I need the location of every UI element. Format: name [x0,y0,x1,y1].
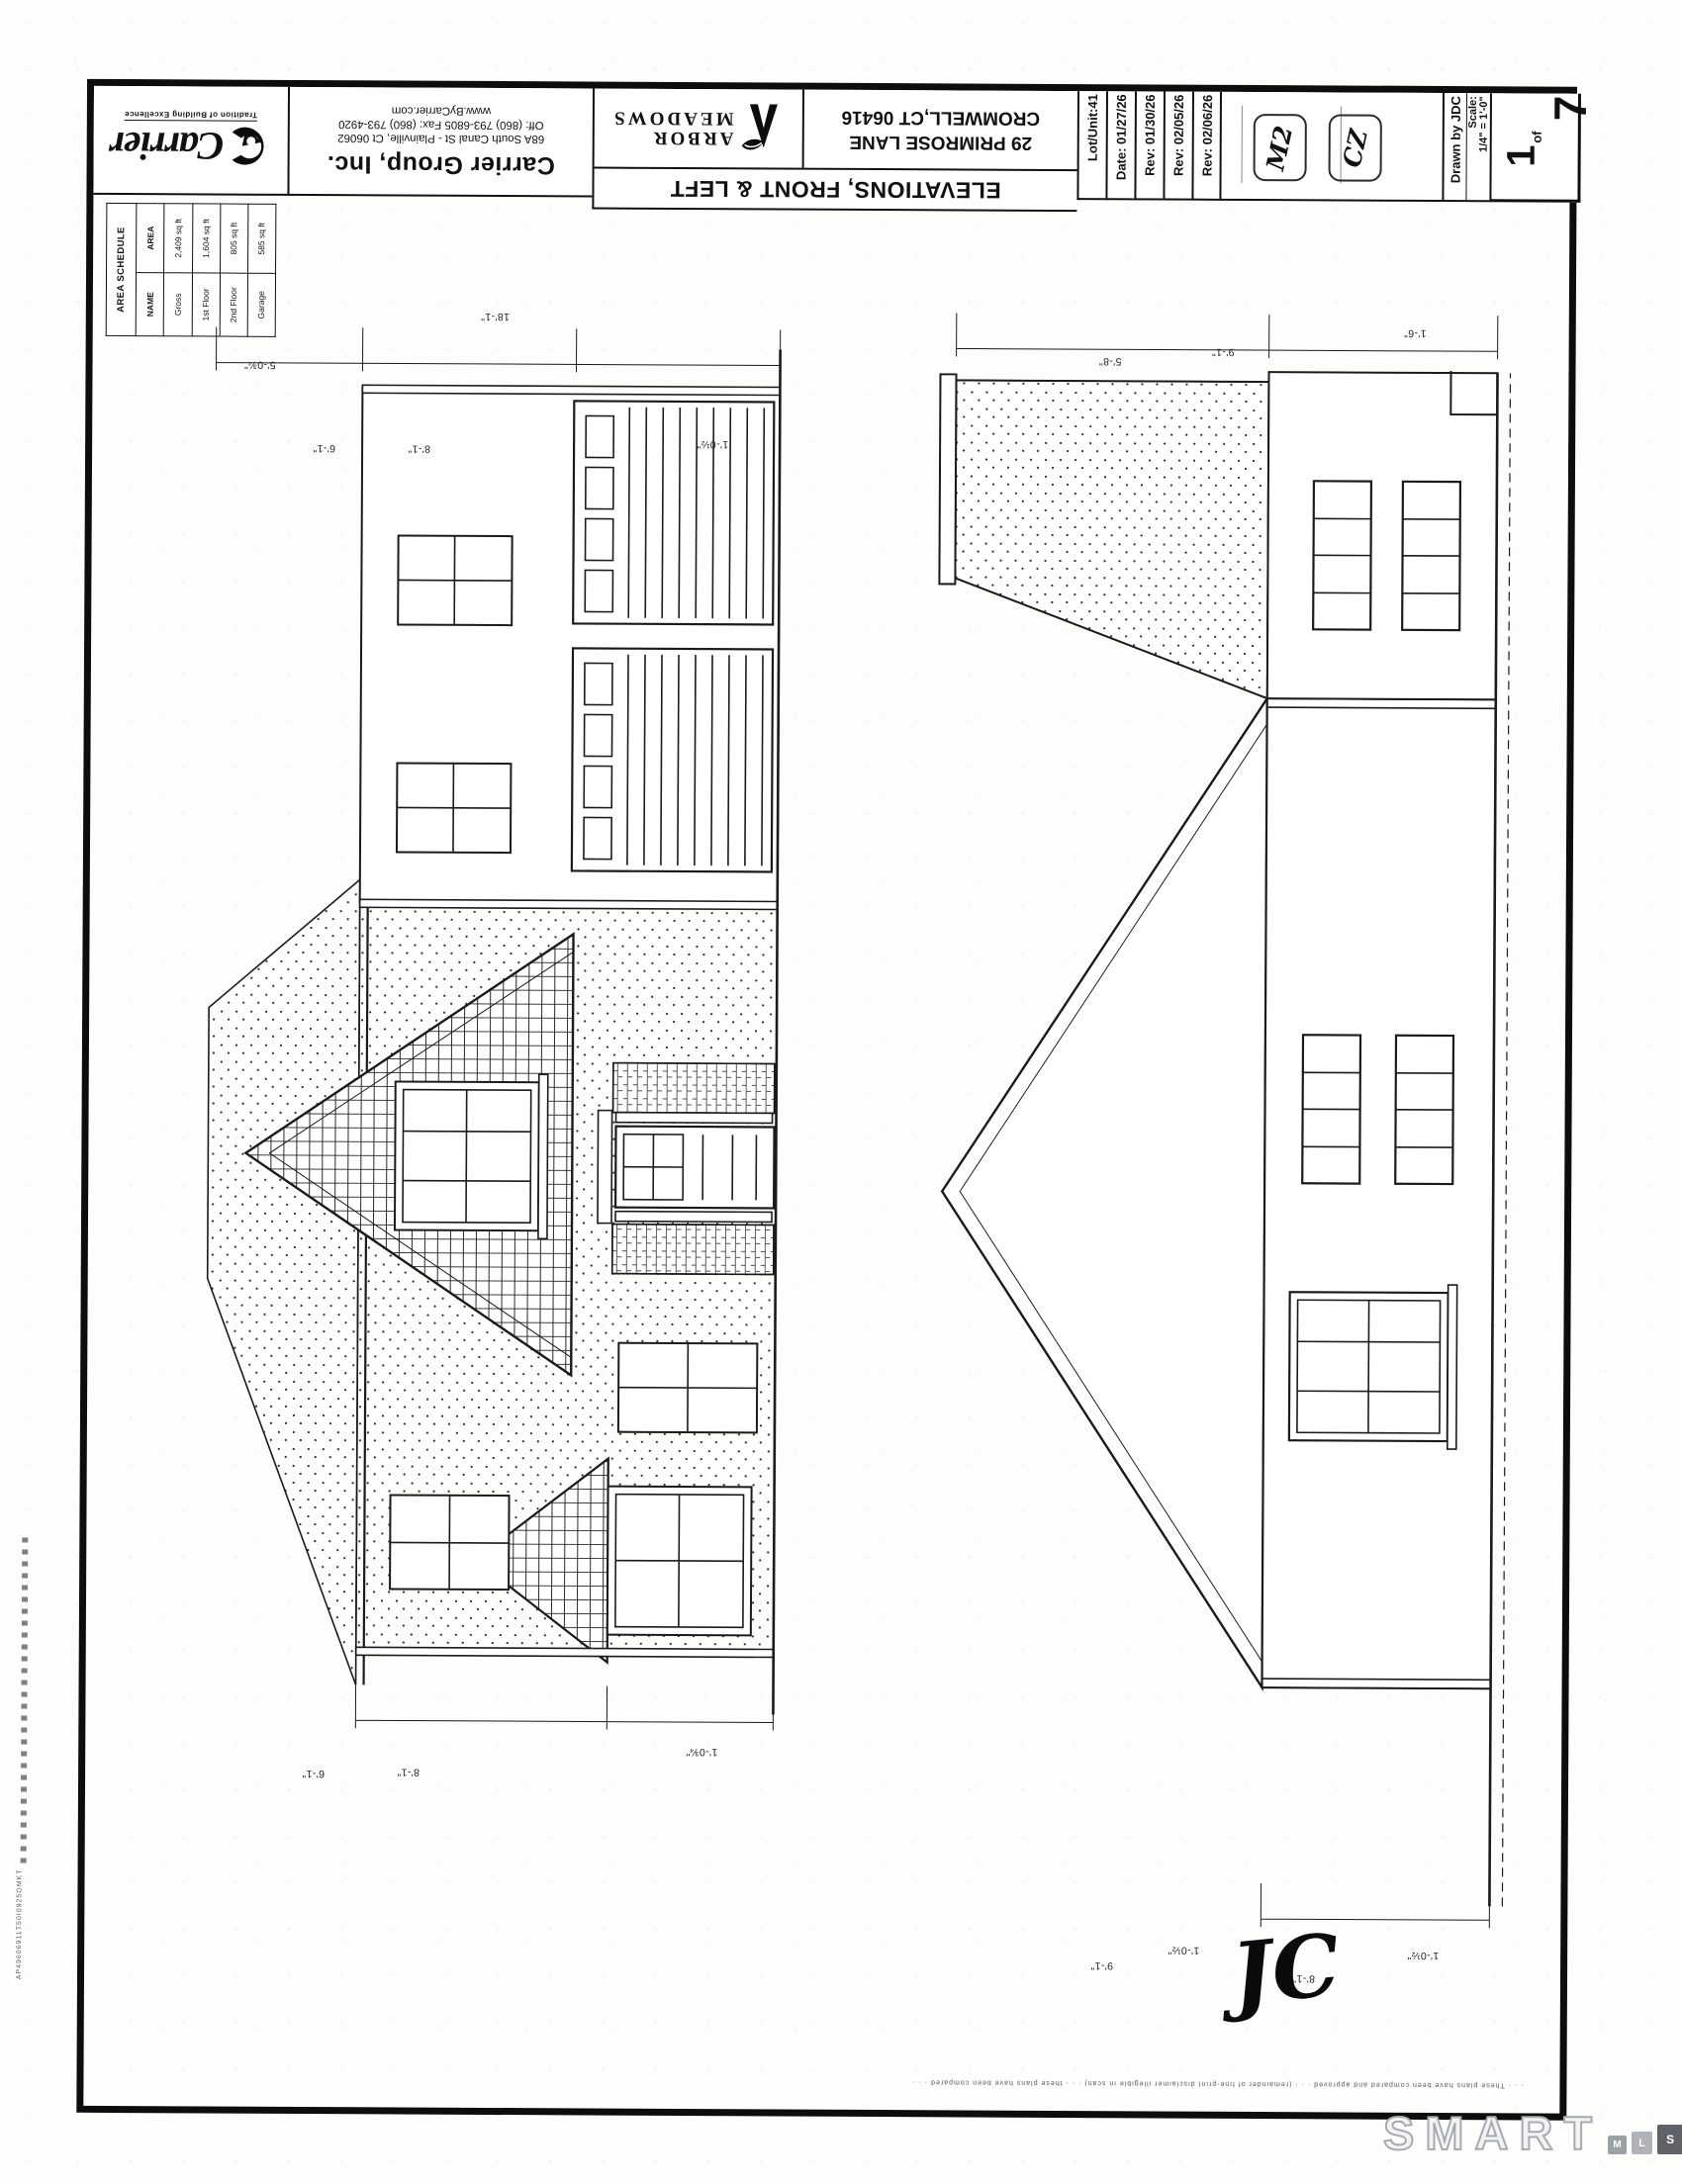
arbor-word2: MEADOWS [611,108,734,129]
dim-label: 1'-6" [1404,327,1427,339]
dim-label: 6'-1" [302,1768,325,1779]
sheet-title: ELEVATIONS, FRONT & LEFT [670,175,1001,204]
dim-label: 1'-0½" [697,438,728,450]
scan-edge-artifact-dashes [21,1538,29,1865]
carrier-logo-tagline: Tradition of Building Excellence [125,110,257,122]
rev3-cell: Rev: 02/06/26 [1191,92,1220,201]
smartmls-s-box: S [1657,2125,1682,2154]
project-address-line1: 29 PRIMROSE LANE [804,129,1077,154]
scan-content: Carrier Tradition of Building Excellence… [0,0,1682,2184]
front-elevation-drawing [140,317,791,1774]
sheet-total: 7 [1543,96,1597,122]
project-address-line2: CROMWELL,CT 06416 [804,104,1077,130]
company-info-box: Carrier Group, Inc. 68A South Canal St -… [287,87,593,198]
sheet-number-box: 1 of 7 [1489,93,1581,202]
dim-label: 1'-0½" [1407,1950,1439,1961]
stamp-box-1: M2 [1254,114,1307,181]
date-cell: Date: 01/27/26 [1105,91,1135,200]
dim-label: 1'-0½" [1168,1945,1199,1956]
company-phone: Off: (860) 793-6805 Fax: (860) 793-4920 [338,117,544,132]
left-elevation-drawing [841,311,1523,1996]
area-schedule-title: AREA SCHEDULE [106,203,137,335]
company-website: www.ByCarrier.com [392,103,491,118]
dim-label: 18'-1" [481,311,510,322]
project-address: 29 PRIMROSE LANE CROMWELL,CT 06416 [804,104,1077,154]
rev2-cell: Rev: 02/05/26 [1163,92,1192,201]
stamp-initials-2: CZ [1337,127,1372,169]
carrier-logo-box: Carrier Tradition of Building Excellence [93,86,288,196]
stamp-zone: M2 CZ [1219,92,1443,202]
lot-unit-cell: Lot/Unit:41 [1076,91,1106,200]
scan-edge-artifact-text: AP49606911T50I0925OMKT [16,1868,24,1979]
dim-label: 8'-1" [397,1766,420,1777]
company-name: Carrier Group, Inc. [327,148,555,180]
stamp-initials-1: M2 [1261,123,1299,172]
arbor-leaf-icon [739,103,785,154]
project-box: ELEVATIONS, FRONT & LEFT 29 PRIMROSE LAN… [592,89,1077,213]
smartmls-watermark: SMART M L S [1383,2113,1682,2154]
carrier-logo-word: Carrier [110,123,224,170]
company-address: 68A South Canal St - Plainville, Ct 0606… [337,131,544,145]
dim-label: 5'-8" [1099,355,1122,367]
arbor-word1: ARBOR [611,128,734,148]
sheet-of-label: of [1530,131,1544,142]
handwritten-initials: JC [1227,1915,1345,2025]
rev1-cell: Rev: 01/30/26 [1134,91,1164,200]
sheet-title-row: ELEVATIONS, FRONT & LEFT [594,167,1076,211]
smartmls-m-box: M [1608,2136,1627,2154]
stamp-box-2: CZ [1329,114,1382,181]
dim-label: 9'-1" [1212,346,1235,358]
area-col-area: AREA [137,204,164,273]
sheet-number: 1 [1500,144,1544,166]
dim-label: 5'-0¾" [244,359,276,371]
smartmls-wordmark: SMART [1383,2113,1603,2154]
dim-label: 9'-1" [1090,1959,1113,1971]
drawn-by-cell: Drawn by JDC [1442,93,1466,202]
dim-label: 1'-0¾" [686,1746,717,1758]
scale-label-cell: Scale: [1465,93,1478,202]
scanned-elevation-sheet: { "title_block": { "company": { "logo_wo… [0,0,1682,2176]
dim-label: 8'-1" [408,443,430,455]
arbor-meadows-logo: ARBOR MEADOWS [595,89,804,168]
smartmls-l-box: L [1632,2132,1652,2154]
scale-value-cell: 1/4" = 1'-0" [1477,93,1490,202]
carrier-logo-icon [228,125,271,168]
dim-label: 6'-1" [313,442,335,454]
